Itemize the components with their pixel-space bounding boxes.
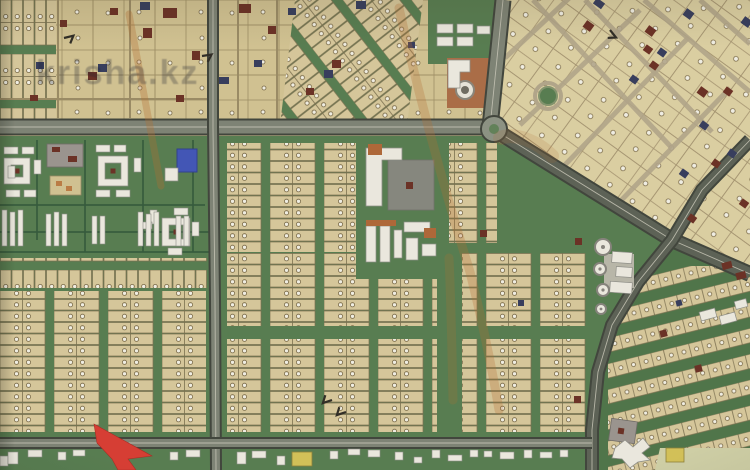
- mosque-dome-core: [601, 245, 605, 249]
- bottom-building: [186, 450, 200, 457]
- bottom-building: [73, 450, 85, 456]
- apartment-slab: [10, 212, 15, 246]
- maroon-building: [239, 4, 251, 13]
- mosque-building: [616, 266, 633, 277]
- maroon-building: [192, 51, 200, 60]
- mosque-dome-core: [601, 288, 604, 291]
- apartment-bar: [8, 166, 15, 178]
- navy-building: [288, 8, 296, 15]
- bottom-building: [8, 452, 18, 464]
- apartment-bar: [34, 160, 41, 174]
- bottom-building: [0, 456, 8, 466]
- commercial-building: [457, 37, 473, 46]
- bottom-building: [330, 451, 338, 459]
- school-roof: [368, 144, 382, 155]
- maroon-building: [332, 60, 341, 68]
- apartment-bar: [192, 222, 199, 236]
- kindergarten-wing: [422, 244, 436, 256]
- center-strips-south: [227, 253, 588, 432]
- bottom-building: [58, 452, 66, 460]
- maroon-building: [480, 230, 487, 237]
- commercial-building: [477, 26, 490, 34]
- apartment-slab: [138, 212, 143, 246]
- apartment-bar: [6, 190, 20, 197]
- kindergarten-wing: [406, 238, 418, 260]
- bottom-building: [560, 450, 568, 457]
- mosque-dome-core: [598, 267, 601, 270]
- bottom-building: [368, 450, 380, 457]
- apartment-slab: [46, 214, 51, 246]
- bottom-building: [484, 451, 492, 457]
- bottom-building-yellow: [292, 452, 312, 466]
- maroon-building: [143, 28, 152, 38]
- kindergarten-wing: [366, 226, 376, 262]
- bottom-building: [540, 452, 552, 458]
- sw-school-roof: [52, 147, 60, 152]
- kindergarten-wing: [394, 230, 402, 258]
- apartment-bar: [24, 190, 36, 197]
- apartment-courtyard-center: [111, 169, 116, 174]
- playground-equipment: [56, 181, 62, 186]
- master-plan-map: [0, 0, 750, 470]
- plaza-monument: [406, 182, 413, 189]
- listing-photo-master-plan: krisha.kz: [0, 0, 750, 470]
- apartment-bar: [114, 145, 126, 152]
- bottom-building: [28, 450, 42, 457]
- navy-building: [518, 300, 524, 306]
- commercial-building: [437, 37, 453, 46]
- kindergarten-roof: [366, 220, 396, 226]
- green-lane: [0, 136, 488, 140]
- bottom-building: [500, 452, 514, 459]
- sw-strips: [0, 291, 206, 432]
- park-circle: [539, 87, 557, 105]
- navy-building: [140, 2, 150, 10]
- maroon-building: [306, 88, 314, 95]
- bottom-building: [237, 452, 246, 464]
- kindergarten-wing: [380, 226, 390, 262]
- maroon-building: [163, 8, 177, 18]
- apartment-slab: [62, 214, 67, 246]
- maroon-building: [268, 26, 276, 34]
- se-school-roof: [618, 428, 625, 435]
- commercial-building: [457, 24, 473, 33]
- navy-building: [324, 70, 333, 78]
- navy-building: [356, 1, 366, 9]
- center-strips-nw: [227, 143, 360, 252]
- apartment-slab: [184, 216, 189, 246]
- mosque-building: [610, 281, 633, 294]
- sw-school-roof: [68, 156, 77, 162]
- apartment-bar: [22, 147, 34, 154]
- apartment-bar: [96, 190, 110, 197]
- maroon-building: [176, 95, 184, 102]
- apartment-slab: [92, 216, 97, 244]
- apartment-slab: [154, 212, 159, 246]
- minaret-core: [600, 308, 603, 311]
- apartment-slab: [176, 216, 181, 246]
- apartment-slab: [146, 214, 151, 246]
- navy-building: [36, 62, 44, 69]
- mosque-building: [612, 251, 633, 263]
- apartment-slab: [100, 216, 105, 244]
- green-lane: [227, 326, 588, 339]
- maroon-building: [575, 238, 582, 245]
- maroon-building: [60, 20, 67, 27]
- commercial-building: [437, 24, 453, 33]
- bottom-building: [432, 450, 440, 458]
- apartment-bar: [134, 158, 141, 172]
- apartment-bar: [116, 190, 130, 197]
- maroon-building: [110, 8, 118, 15]
- sw-lot-row: [0, 258, 207, 288]
- maroon-building: [30, 95, 38, 101]
- apartment-bar: [96, 145, 110, 152]
- apartment-bar: [4, 147, 18, 154]
- bottom-building: [348, 449, 360, 455]
- maroon-building: [574, 396, 581, 403]
- playground-equipment: [66, 186, 72, 191]
- bottom-building: [277, 456, 285, 465]
- stadium-ring-core: [461, 86, 469, 94]
- apartment-slab: [2, 210, 7, 246]
- kindergarten-roof: [424, 228, 436, 238]
- bottom-building: [524, 450, 532, 458]
- bottom-building: [252, 451, 266, 458]
- navy-building: [219, 77, 229, 84]
- bottom-building: [395, 452, 403, 460]
- bottom-building-yellow: [666, 448, 684, 462]
- navy-building: [98, 64, 107, 72]
- apartment-bar: [174, 208, 188, 215]
- apartment-slab: [54, 212, 59, 246]
- pondside-building: [165, 168, 178, 181]
- apartment-bar: [168, 248, 182, 255]
- orange-streak: [449, 258, 453, 400]
- bottom-building: [470, 450, 478, 457]
- apartment-slab: [18, 210, 23, 246]
- maroon-building: [88, 72, 97, 80]
- nw-left-lot-column: [0, 0, 56, 120]
- bottom-building: [414, 457, 422, 463]
- playground: [50, 176, 81, 195]
- bottom-building: [170, 452, 178, 460]
- navy-building: [254, 60, 262, 67]
- pond: [177, 149, 197, 172]
- bottom-building: [448, 455, 462, 461]
